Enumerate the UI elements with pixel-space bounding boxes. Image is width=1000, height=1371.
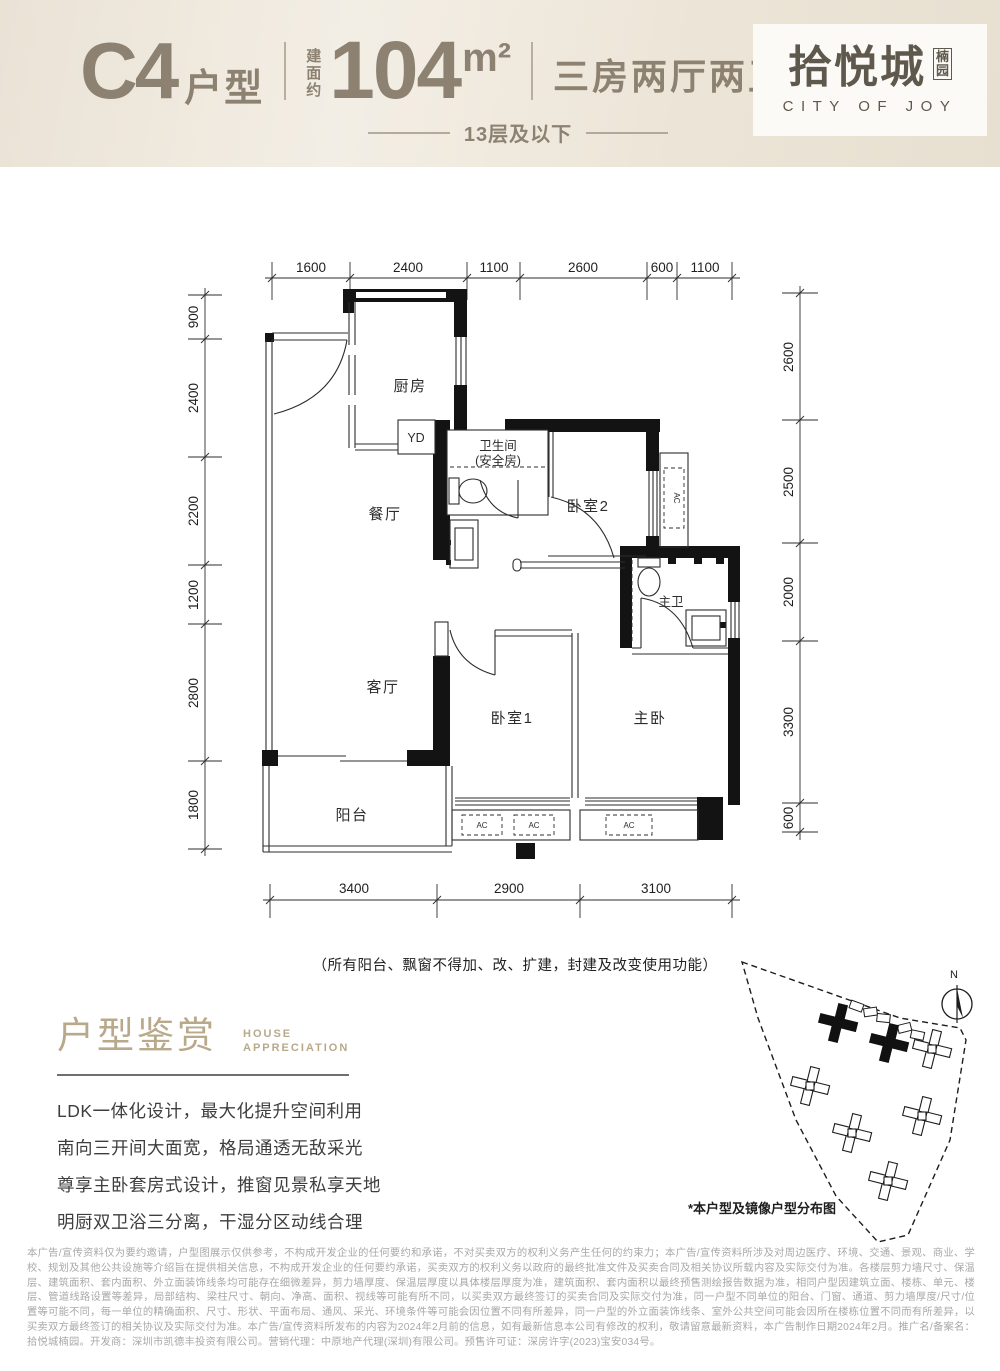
brand-subname-char: 楠	[936, 50, 949, 64]
thin-structures	[263, 302, 739, 852]
svg-text:1800: 1800	[186, 790, 201, 820]
area-prefix-char: 建	[306, 48, 321, 65]
label-bedroom1: 卧室1	[491, 710, 534, 727]
area-prefix-char: 约	[306, 82, 321, 99]
appreciation-point: LDK一体化设计，最大化提升空间利用	[57, 1093, 387, 1130]
label-bath-2: (安全房)	[475, 453, 521, 468]
brand-subname-box: 楠 园	[933, 48, 952, 80]
appreciation-rule	[57, 1074, 349, 1076]
appreciation-subtitle: HOUSE APPRECIATION	[243, 1027, 349, 1055]
svg-text:2900: 2900	[494, 881, 524, 896]
brand-subname-char: 园	[936, 64, 949, 78]
room-count-text: 三房两厅两卫	[553, 48, 787, 100]
header-band: C4 户型 建 面 约 104 m² 三房两厅两卫 13层及以下 拾悦城 楠 园…	[0, 0, 1000, 167]
svg-text:2600: 2600	[781, 342, 796, 372]
legal-disclaimer: 本广告/宣传资料仅为要约邀请，户型图展示仅供参考，不构成开发企业的任何要约和承诺…	[27, 1247, 975, 1351]
svg-text:3300: 3300	[781, 707, 796, 737]
header-title-row: C4 户型 建 面 约 104 m² 三房两厅两卫	[80, 30, 787, 112]
unit-code: C4	[80, 31, 176, 111]
appreciation-section: 户型鉴赏 HOUSE APPRECIATION LDK一体化设计，最大化提升空间…	[57, 1005, 387, 1241]
label-master-bath: 主卫	[658, 595, 683, 609]
area-prefix-char: 面	[306, 65, 321, 82]
floors-dash-left	[368, 132, 450, 134]
label-bedroom2: 卧室2	[567, 498, 610, 515]
svg-text:2600: 2600	[568, 260, 598, 275]
svg-text:600: 600	[651, 260, 674, 275]
brand-name-en: CITY OF JOY	[783, 98, 958, 115]
brand-name-cn: 拾悦城	[788, 46, 926, 90]
appreciation-point: 明厨双卫浴三分离，干湿分区动线合理	[57, 1204, 387, 1241]
brand-logo: 拾悦城 楠 园 CITY OF JOY	[753, 24, 987, 136]
svg-text:2200: 2200	[186, 496, 201, 526]
floors-text: 13层及以下	[464, 118, 572, 147]
appreciation-header: 户型鉴赏 HOUSE APPRECIATION	[57, 1005, 387, 1059]
label-living: 客厅	[366, 679, 399, 696]
svg-text:1100: 1100	[479, 260, 508, 275]
label-ac: AC	[623, 821, 634, 830]
svg-text:2000: 2000	[781, 577, 796, 607]
label-yd: YD	[407, 431, 424, 445]
svg-text:2800: 2800	[186, 678, 201, 708]
area-value: 104	[329, 30, 460, 112]
area-unit: m²	[462, 36, 511, 81]
floors-row: 13层及以下	[368, 118, 668, 147]
north-compass-icon: N	[942, 969, 972, 1023]
svg-text:2400: 2400	[393, 260, 423, 275]
area-prefix: 建 面 约	[306, 48, 321, 99]
label-balcony: 阳台	[335, 807, 368, 824]
site-plan: *本户型及镜像户型分布图	[688, 962, 966, 1242]
svg-text:1600: 1600	[296, 260, 326, 275]
label-ac: AC	[672, 492, 681, 503]
unit-suffix: 户型	[184, 57, 264, 112]
plan-restriction-note: （所有阳台、飘窗不得加、改、扩建，封建及改变使用功能）	[313, 956, 718, 974]
appreciation-point: 尊享主卧套房式设计，推窗见景私享天地	[57, 1167, 387, 1204]
label-dining: 餐厅	[368, 506, 401, 523]
svg-text:1100: 1100	[690, 260, 719, 275]
svg-text:600: 600	[781, 807, 796, 830]
dimension-lines	[188, 262, 818, 918]
label-ac: AC	[528, 821, 539, 830]
header-divider-2	[531, 42, 533, 100]
svg-text:3400: 3400	[339, 881, 369, 896]
svg-text:N: N	[950, 969, 958, 981]
svg-text:3100: 3100	[641, 881, 671, 896]
appreciation-point: 南向三开间大面宽，格局通透无敌采光	[57, 1130, 387, 1167]
label-master: 主卧	[633, 710, 666, 727]
brand-logo-row: 拾悦城 楠 园	[788, 46, 952, 90]
appreciation-subtitle-line: APPRECIATION	[243, 1041, 349, 1055]
appreciation-points: LDK一体化设计，最大化提升空间利用 南向三开间大面宽，格局通透无敌采光 尊享主…	[57, 1093, 387, 1241]
label-kitchen: 厨房	[393, 378, 426, 395]
header-divider-1	[284, 42, 286, 100]
siteplan-caption: *本户型及镜像户型分布图	[688, 1201, 836, 1216]
label-ac: AC	[476, 821, 487, 830]
svg-text:2400: 2400	[186, 383, 201, 413]
svg-text:1200: 1200	[186, 580, 201, 610]
appreciation-subtitle-line: HOUSE	[243, 1027, 349, 1041]
label-bath-1: 卫生间	[479, 439, 517, 453]
floors-dash-right	[586, 132, 668, 134]
highlighted-tower	[819, 1004, 858, 1043]
svg-text:2500: 2500	[781, 467, 796, 497]
appreciation-title: 户型鉴赏	[57, 1005, 217, 1059]
svg-text:900: 900	[186, 306, 201, 329]
